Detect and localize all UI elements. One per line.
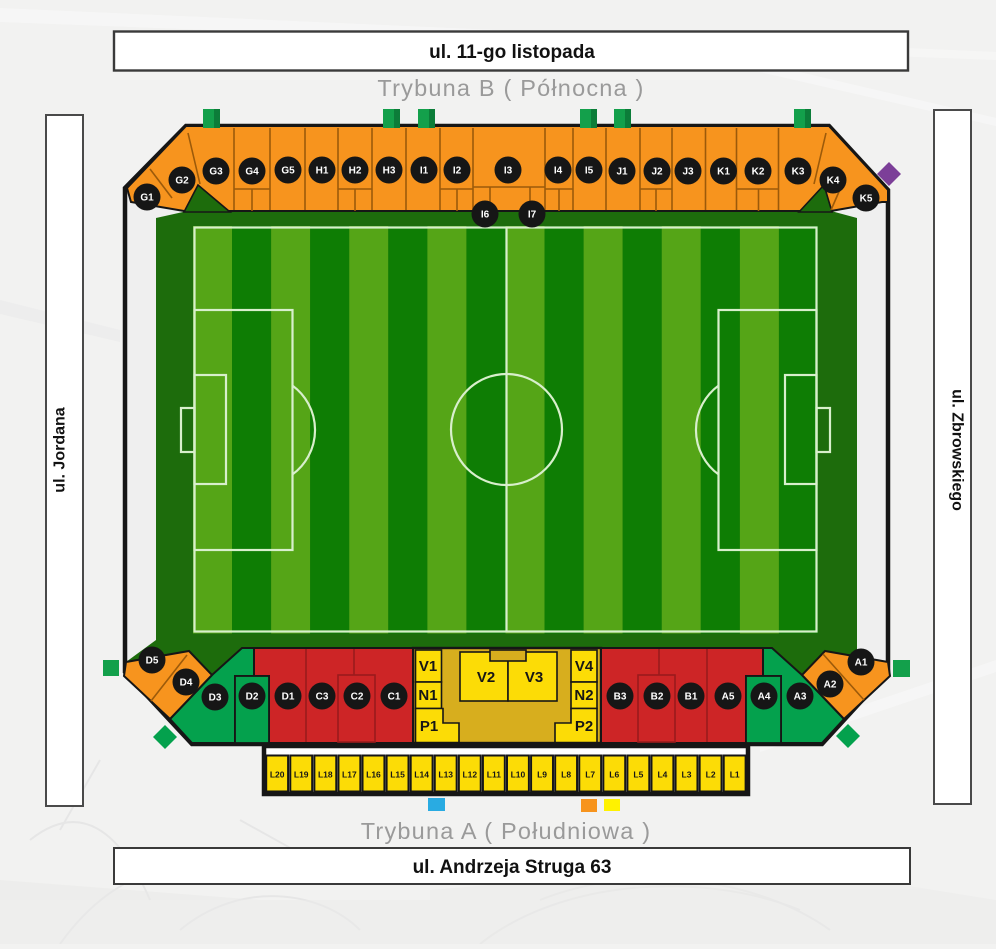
svg-text:L15: L15 — [390, 770, 405, 780]
svg-text:C2: C2 — [351, 692, 364, 703]
svg-text:P1: P1 — [420, 718, 438, 735]
svg-text:ul. Andrzeja Struga 63: ul. Andrzeja Struga 63 — [413, 857, 612, 878]
svg-text:B2: B2 — [651, 692, 664, 703]
svg-text:N2: N2 — [574, 687, 593, 704]
svg-text:ul. Zbrowskiego: ul. Zbrowskiego — [949, 389, 966, 511]
svg-text:G4: G4 — [245, 167, 259, 178]
svg-text:K5: K5 — [860, 194, 873, 205]
svg-text:L9: L9 — [537, 770, 547, 780]
svg-text:C3: C3 — [316, 692, 329, 703]
svg-text:L12: L12 — [462, 770, 477, 780]
svg-text:K3: K3 — [792, 167, 805, 178]
svg-text:H2: H2 — [349, 166, 362, 177]
svg-text:C1: C1 — [388, 692, 401, 703]
svg-text:L3: L3 — [682, 770, 692, 780]
svg-text:I2: I2 — [453, 166, 462, 177]
svg-text:L2: L2 — [706, 770, 716, 780]
svg-text:A5: A5 — [722, 692, 735, 703]
svg-text:ul. 11-go listopada: ul. 11-go listopada — [429, 42, 595, 63]
svg-text:V1: V1 — [419, 658, 437, 675]
svg-text:L7: L7 — [585, 770, 595, 780]
svg-text:L14: L14 — [414, 770, 429, 780]
svg-text:B3: B3 — [614, 692, 627, 703]
svg-text:G3: G3 — [209, 167, 223, 178]
svg-text:V2: V2 — [477, 669, 495, 686]
svg-text:L11: L11 — [487, 770, 501, 780]
svg-text:I7: I7 — [528, 210, 537, 221]
svg-text:D2: D2 — [246, 692, 259, 703]
svg-text:G1: G1 — [140, 193, 154, 204]
svg-text:K1: K1 — [717, 167, 730, 178]
svg-text:P2: P2 — [575, 718, 593, 735]
svg-text:D1: D1 — [282, 692, 295, 703]
svg-text:K2: K2 — [752, 167, 765, 178]
svg-text:G5: G5 — [281, 166, 295, 177]
svg-text:A4: A4 — [758, 692, 771, 703]
svg-text:I6: I6 — [481, 210, 490, 221]
svg-text:ul. Jordana: ul. Jordana — [52, 407, 69, 492]
svg-text:Trybuna A ( Południowa ): Trybuna A ( Południowa ) — [361, 818, 652, 844]
svg-text:A3: A3 — [794, 692, 807, 703]
svg-text:H3: H3 — [383, 166, 396, 177]
svg-text:A2: A2 — [824, 680, 837, 691]
svg-text:D5: D5 — [146, 656, 159, 667]
svg-text:V3: V3 — [525, 669, 543, 686]
svg-text:I4: I4 — [554, 166, 563, 177]
svg-text:L8: L8 — [561, 770, 571, 780]
svg-text:Trybuna B ( Północna ): Trybuna B ( Północna ) — [377, 75, 644, 101]
svg-text:L17: L17 — [342, 770, 357, 780]
svg-text:L10: L10 — [511, 770, 526, 780]
svg-text:B1: B1 — [685, 692, 698, 703]
svg-text:A1: A1 — [855, 658, 868, 669]
svg-text:I1: I1 — [420, 166, 429, 177]
svg-text:D3: D3 — [209, 693, 222, 704]
svg-text:I3: I3 — [504, 166, 513, 177]
svg-text:L19: L19 — [294, 770, 309, 780]
svg-text:L6: L6 — [609, 770, 619, 780]
svg-text:J1: J1 — [616, 167, 628, 178]
svg-text:L16: L16 — [366, 770, 381, 780]
svg-text:D4: D4 — [180, 678, 193, 689]
svg-text:G2: G2 — [175, 176, 189, 187]
svg-text:V4: V4 — [575, 658, 594, 675]
svg-text:J3: J3 — [682, 167, 694, 178]
svg-text:H1: H1 — [316, 166, 329, 177]
svg-text:N1: N1 — [418, 687, 437, 704]
svg-text:L5: L5 — [633, 770, 643, 780]
svg-text:L4: L4 — [657, 770, 667, 780]
svg-text:L1: L1 — [730, 770, 740, 780]
svg-text:L13: L13 — [438, 770, 453, 780]
svg-text:I5: I5 — [585, 166, 594, 177]
svg-text:K4: K4 — [827, 176, 840, 187]
svg-text:L18: L18 — [318, 770, 333, 780]
svg-text:L20: L20 — [270, 770, 285, 780]
svg-text:J2: J2 — [651, 167, 663, 178]
